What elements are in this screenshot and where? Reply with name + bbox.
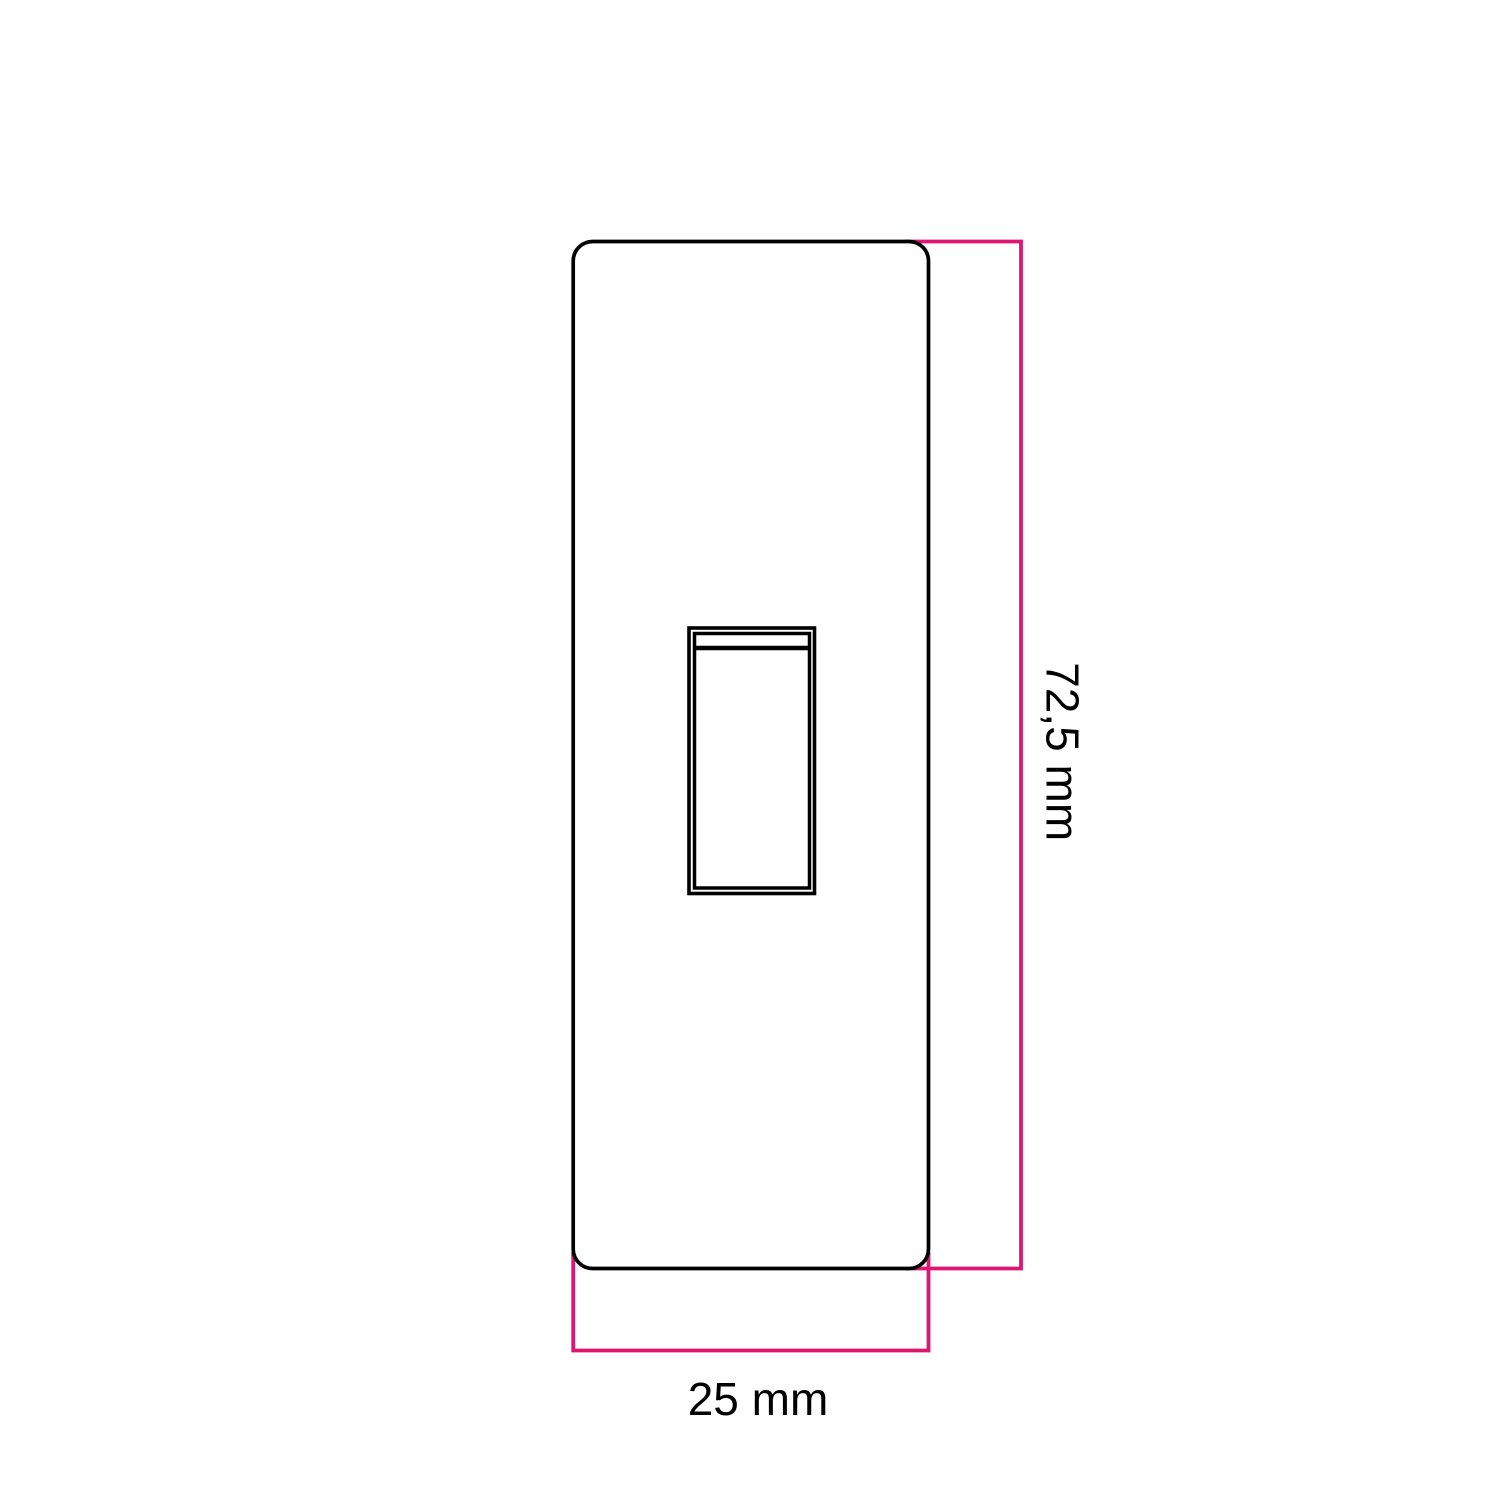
svg-text:72,5 mm: 72,5 mm <box>1037 662 1089 841</box>
svg-text:25 mm: 25 mm <box>688 1373 829 1425</box>
